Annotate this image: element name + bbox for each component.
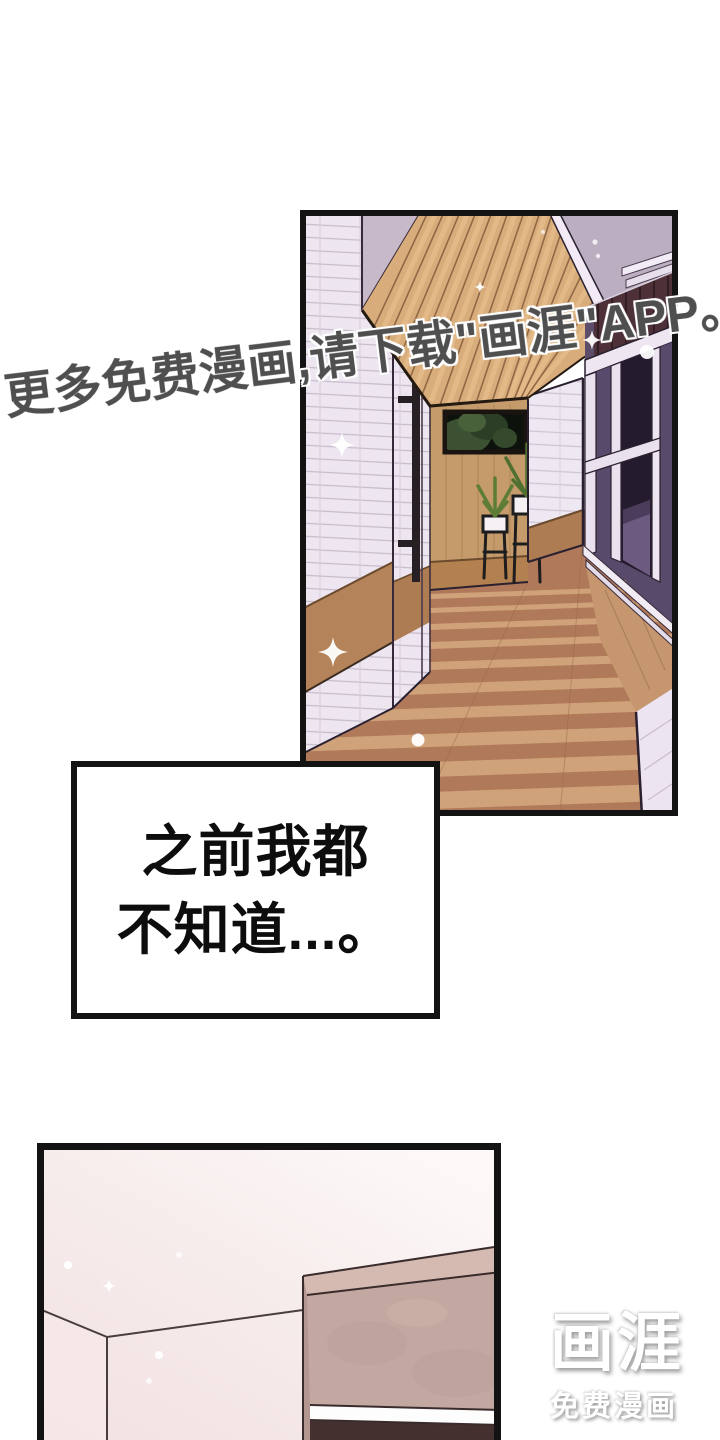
speech-line-2: 不知道...。 bbox=[77, 891, 434, 969]
speech-line-1: 之前我都 bbox=[77, 813, 434, 891]
right-brick-pillar bbox=[528, 378, 583, 562]
logo-brand-text: 画涯 bbox=[550, 1310, 684, 1377]
speech-bubble: 之前我都 不知道...。 bbox=[71, 761, 440, 1019]
brand-logo: 画涯 免费漫画 bbox=[550, 1310, 684, 1425]
comic-page: 更多免费漫画,请下载"画涯"APP。 之前我都 不知道...。 bbox=[0, 0, 720, 1440]
logo-tagline: 免费漫画 bbox=[550, 1383, 684, 1425]
cabinet bbox=[303, 1246, 501, 1440]
hall-window bbox=[439, 412, 526, 454]
comic-panel-bedroom bbox=[37, 1143, 501, 1440]
